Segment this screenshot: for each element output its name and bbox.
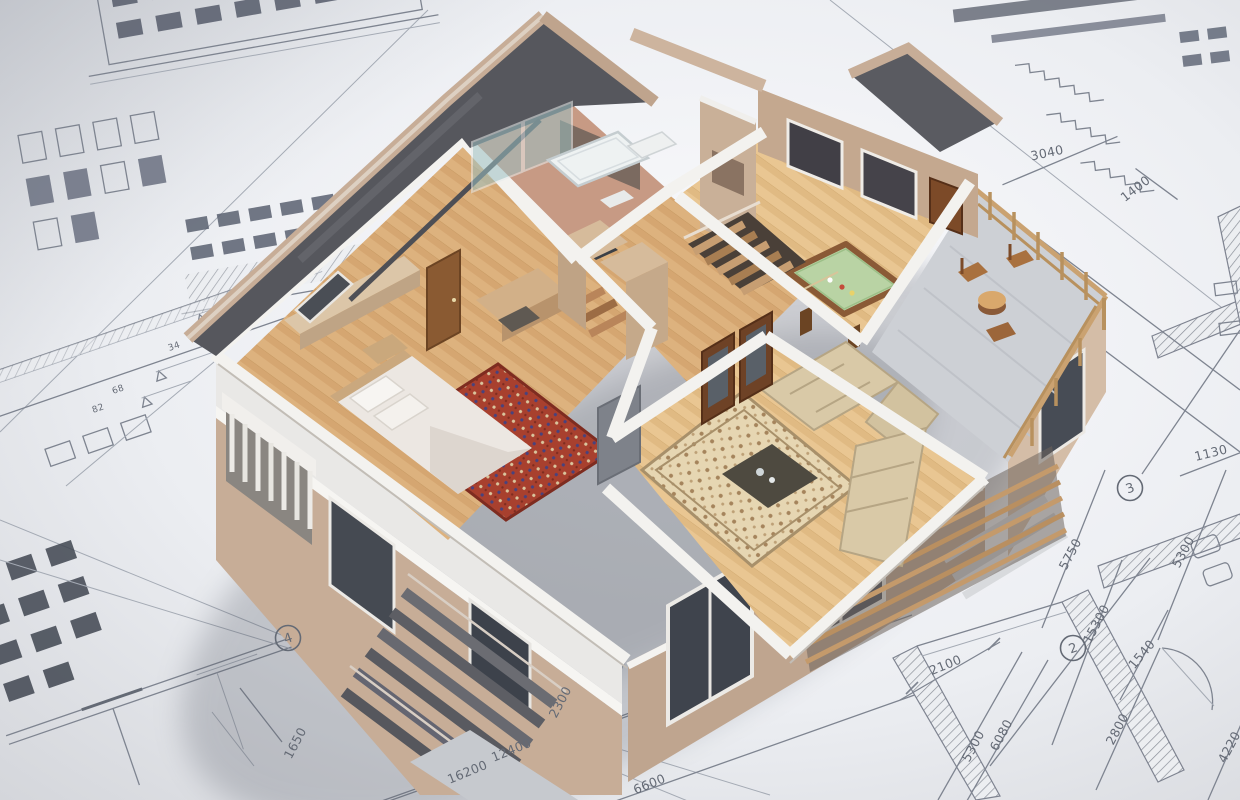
glassware bbox=[756, 468, 764, 476]
billiard-ball bbox=[839, 284, 844, 289]
glassware bbox=[769, 477, 775, 483]
billiard-ball bbox=[827, 277, 832, 282]
billiard-ball bbox=[849, 290, 854, 295]
terrace-table-top bbox=[978, 291, 1006, 309]
architectural-render: 1650124001620023006600210053006080153005… bbox=[0, 0, 1240, 800]
door-handle bbox=[452, 298, 456, 302]
render-canvas: 1650124001620023006600210053006080153005… bbox=[0, 0, 1240, 800]
